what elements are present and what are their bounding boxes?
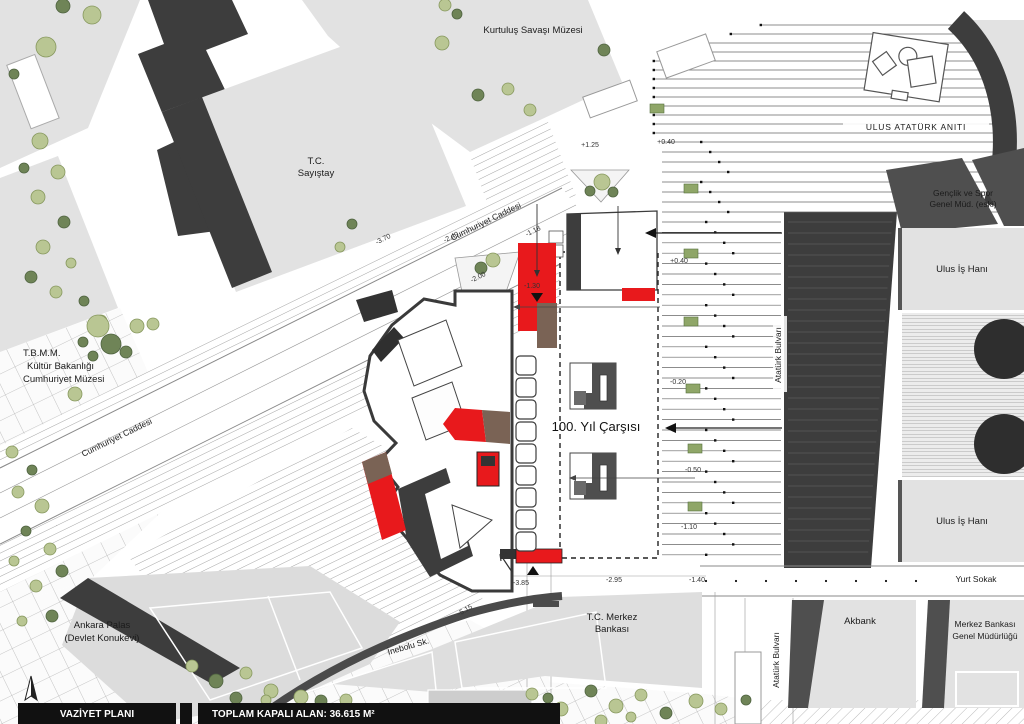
- column: [516, 356, 536, 375]
- tree-icon: [543, 693, 553, 703]
- elevation-south-3: -1.40: [689, 577, 705, 584]
- label-genclik-1: Gençlik ve Spor: [933, 188, 993, 198]
- tree-icon: [21, 526, 31, 536]
- tree-icon: [9, 69, 19, 79]
- tree-icon: [524, 104, 536, 116]
- column: [516, 532, 536, 551]
- tree-icon: [609, 699, 623, 713]
- road-island: [735, 652, 761, 724]
- tree-icon: [25, 271, 37, 283]
- building-mb-genel-mudurlugu: [922, 600, 1024, 708]
- tree-icon: [526, 688, 538, 700]
- elevation-entrance: -1.30: [524, 283, 540, 290]
- tree-icon: [32, 133, 48, 149]
- label-tbmm-2: Kültür Bakanlığı: [27, 361, 94, 372]
- planter: [650, 104, 664, 113]
- tree-icon: [335, 242, 345, 252]
- tree-icon: [598, 44, 610, 56]
- tree-icon: [36, 37, 56, 57]
- label-ulus-is-hani-south: Ulus İş Hanı: [936, 516, 988, 527]
- tree-icon: [452, 9, 462, 19]
- label-yurt-sokak: Yurt Sokak: [955, 574, 997, 584]
- column: [516, 466, 536, 485]
- tree-icon: [88, 351, 98, 361]
- tree-icon: [130, 319, 144, 333]
- elevation-south-2: -2.95: [606, 577, 622, 584]
- tree-icon: [240, 667, 252, 679]
- tree-icon: [58, 216, 70, 228]
- tree-icon: [79, 296, 89, 306]
- tree-icon: [44, 543, 56, 555]
- label-merkez-bankasi-1: T.C. Merkez: [587, 612, 638, 623]
- ramp-brown-north: [537, 303, 557, 348]
- tree-icon: [50, 286, 62, 298]
- label-sayistay-1: T.C.: [308, 156, 325, 167]
- tree-icon: [209, 674, 223, 688]
- elevation-south-1: -3.85: [513, 580, 529, 587]
- label-tbmm-1: T.B.M.M.: [23, 348, 60, 359]
- ramp-brown-west: [482, 410, 510, 444]
- tree-icon: [30, 580, 42, 592]
- tree-icon: [31, 190, 45, 204]
- label-sayistay-2: Sayıştay: [298, 168, 335, 179]
- tree-icon: [35, 499, 49, 513]
- tree-icon: [83, 6, 101, 24]
- stair-core-south: [570, 453, 616, 499]
- site-plan-canvas: Kurtuluş Savaşı Müzesi T.C. Sayıştay ULU…: [0, 0, 1024, 724]
- elevation-blvd-3: +0.40: [670, 258, 688, 265]
- tree-icon: [585, 186, 595, 196]
- tree-icon: [294, 690, 308, 704]
- label-ataturk-bulvari-north: Atatürk Bulvarı: [773, 327, 783, 383]
- tree-icon: [347, 219, 357, 229]
- planter: [686, 384, 700, 393]
- tree-icon: [594, 174, 610, 190]
- tree-icon: [19, 163, 29, 173]
- tree-icon: [689, 694, 703, 708]
- tree-icon: [608, 187, 618, 197]
- footer-total-area: TOPLAM KAPALI ALAN: 36.615 M²: [212, 709, 375, 720]
- label-ulus-is-hani-north: Ulus İş Hanı: [936, 264, 988, 275]
- tree-icon: [66, 258, 76, 268]
- tree-icon: [472, 89, 484, 101]
- site-plan-svg: Kurtuluş Savaşı Müzesi T.C. Sayıştay ULU…: [0, 0, 1024, 724]
- tree-icon: [660, 707, 672, 719]
- footer-plan-title: VAZİYET PLANI: [60, 707, 134, 720]
- planter: [688, 502, 702, 511]
- colonnade-columns: [516, 356, 536, 551]
- label-akbank: Akbank: [844, 616, 876, 627]
- elevation-blvd-6: -1.10: [681, 524, 697, 531]
- label-mb-genel-1: Merkez Bankası: [955, 619, 1016, 629]
- tree-icon: [626, 712, 636, 722]
- elevation-blvd-1: +1.25: [581, 142, 599, 149]
- tree-icon: [230, 692, 242, 704]
- tree-icon: [741, 695, 751, 705]
- tree-icon: [6, 446, 18, 458]
- column: [516, 378, 536, 397]
- tree-icon: [147, 318, 159, 330]
- label-kurtulus-muzesi: Kurtuluş Savaşı Müzesi: [483, 25, 582, 36]
- tree-icon: [715, 703, 727, 715]
- planter: [684, 249, 698, 258]
- tree-icon: [435, 36, 449, 50]
- tree-icon: [585, 685, 597, 697]
- tree-icon: [78, 337, 88, 347]
- label-ataturk-bulvari-south: Atatürk Bulvarı: [771, 632, 781, 688]
- label-100-yil-carsisi: 100. Yıl Çarşısı: [552, 419, 641, 434]
- column: [516, 510, 536, 529]
- elevation-blvd-2: +0.40: [657, 139, 675, 146]
- planter: [688, 444, 702, 453]
- tree-icon: [27, 465, 37, 475]
- tree-icon: [51, 165, 65, 179]
- title-bar: VAZİYET PLANI TOPLAM KAPALI ALAN: 36.615…: [18, 703, 560, 724]
- tree-icon: [17, 616, 27, 626]
- tree-icon: [87, 315, 109, 337]
- tree-icon: [101, 334, 121, 354]
- tree-icon: [46, 610, 58, 622]
- tree-icon: [56, 565, 68, 577]
- tree-icon: [68, 387, 82, 401]
- red-entry-strip-east: [622, 288, 655, 301]
- label-tbmm-3: Cumhuriyet Müzesi: [23, 374, 104, 385]
- tree-icon: [186, 660, 198, 672]
- tree-icon: [595, 715, 607, 724]
- column: [516, 488, 536, 507]
- tree-icon: [635, 689, 647, 701]
- label-ankara-palas-2: (Devlet Konukevi): [65, 633, 140, 644]
- tree-icon: [120, 346, 132, 358]
- label-ankara-palas-1: Ankara Palas: [74, 620, 131, 631]
- column: [516, 400, 536, 419]
- planter: [684, 184, 698, 193]
- label-merkez-bankasi-2: Bankası: [595, 624, 629, 635]
- elevation-blvd-4: -0.20: [670, 379, 686, 386]
- tree-icon: [12, 486, 24, 498]
- label-genclik-2: Genel Müd. (eski): [929, 199, 996, 209]
- tree-icon: [439, 0, 451, 11]
- tree-icon: [9, 556, 19, 566]
- label-mb-genel-2: Genel Müdürlüğü: [952, 631, 1017, 641]
- planter: [684, 317, 698, 326]
- tree-icon: [36, 240, 50, 254]
- tree-icon: [56, 0, 70, 13]
- elevation-blvd-5: -0.50: [685, 467, 701, 474]
- tree-icon: [502, 83, 514, 95]
- column: [516, 444, 536, 463]
- tree-icon: [486, 253, 500, 267]
- stair-core-north: [570, 363, 616, 409]
- column: [516, 422, 536, 441]
- label-ulus-aniti: ULUS ATATÜRK ANITI: [866, 122, 966, 132]
